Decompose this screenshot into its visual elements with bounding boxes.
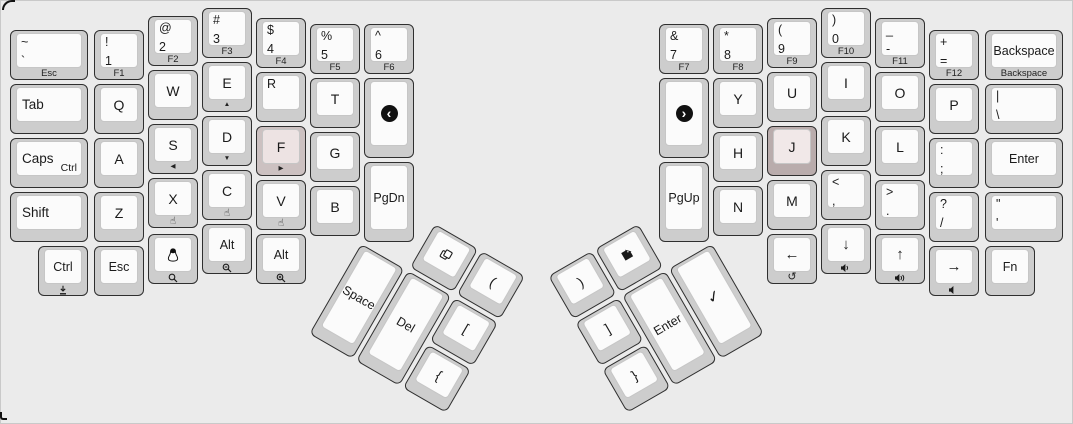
keycap-top: ( [468,257,518,306]
key-ctrl-bottom[interactable]: Ctrl [38,246,88,296]
key-legend: ` [21,54,25,68]
keycap-top: &7 [665,27,703,62]
key-legend-shifted: ? [940,197,947,211]
key-legend: Alt [209,228,245,261]
key-3[interactable]: #3F3 [202,8,252,58]
keycap-top: → [935,249,973,284]
key-front-legend: Esc [11,68,87,79]
key-legend: B [317,190,353,223]
keycap-top: W [154,73,192,108]
key-legend: K [828,120,864,153]
key-legend: M [774,184,810,217]
key-legend: } [610,351,658,398]
keycap-top: += [935,33,973,68]
keycap-top: R [262,75,300,110]
key-9[interactable]: (9F9 [767,18,817,68]
key-legend: O [882,76,918,109]
key-legend: Y [720,82,756,115]
key-z[interactable]: Z [94,192,144,242]
key-front-legend: F7 [660,62,708,73]
keycap-top: M [773,183,811,218]
key-5[interactable]: %5F5 [310,24,360,74]
key-8[interactable]: *8F8 [713,24,763,74]
key-legend: E [209,66,245,99]
key-legend-shifted: % [321,29,332,43]
key-legend: D [209,120,245,153]
keycap-top: Backspace [991,33,1057,68]
key-legend-shifted: & [670,29,678,43]
key-u[interactable]: U [767,72,817,122]
key-legend-shifted: ( [778,23,782,37]
key-1[interactable]: !1F1 [94,30,144,80]
keycap-top: S [154,127,192,162]
key-legend: N [720,190,756,223]
keycap-top: !1 [100,33,138,68]
key-m[interactable]: M [767,180,817,230]
key-c[interactable]: C☝ [202,170,252,220]
keycap-top: $4 [262,21,300,56]
key-arrow-up[interactable]: ↑ [875,234,925,284]
key-d[interactable]: D▼ [202,116,252,166]
tux-icon [167,248,179,262]
key-legend: ↑ [882,238,918,271]
key-6[interactable]: ^6F6 [364,24,414,74]
key-legend: ) [556,258,604,305]
key-legend: ; [940,162,943,176]
key-legend-shifted: ~ [21,35,28,49]
keycap-top: CapsCtrl [16,141,82,176]
keycap-top: |\ [991,87,1057,122]
key-legend-shifted: _ [886,23,893,37]
key-legend-shifted: # [213,13,220,27]
keycap-top: "' [991,195,1057,230]
key-pgdn[interactable]: PgDn [364,162,414,242]
keycap-top: <, [827,173,865,208]
key-legend [423,231,471,278]
key-grave[interactable]: ~`Esc [10,30,88,80]
keycap-top: K [827,119,865,154]
canvas-corner-mark [2,0,15,10]
key-legend: Shift [22,196,49,229]
key-shift[interactable]: Shift [10,192,88,242]
key-legend-shifted: " [996,197,1000,211]
key-legend: Caps [22,142,54,175]
key-front-legend: F3 [203,46,251,57]
key-alt-left-2[interactable]: Alt [256,234,306,284]
volume-down-icon [840,263,852,273]
key-front-legend: ↺ [768,272,816,283]
triangle-left-icon: ◀ [171,164,176,171]
search-icon [168,273,178,283]
key-legend: Enter [992,142,1056,175]
key-backspace[interactable]: BackspaceBackspace [985,30,1063,80]
key-w[interactable]: W [148,70,198,120]
keycap-top: J [773,129,811,164]
keycap-top: Shift [16,195,82,230]
keycap-top: › [665,81,703,146]
keycap-top: ~` [16,33,82,68]
keycap-top [602,230,652,279]
key-equals[interactable]: +=F12 [929,30,979,80]
key-legend: F [263,130,299,163]
key-legend: A [101,142,137,175]
key-pgup[interactable]: PgUp [659,162,709,242]
key-enter-main[interactable]: Enter [985,138,1063,188]
keycap-top: ] [582,303,632,352]
download-icon [58,285,68,295]
key-legend-shifted: ! [105,35,108,49]
key-front-legend: ▼ [203,154,251,165]
key-legend: G [317,136,353,169]
keycap-top: C [208,173,246,208]
pointer-hand-icon: ☝ [224,209,230,219]
key-legend-shifted: ) [832,13,836,27]
keycap-top: :; [935,141,973,176]
key-legend: 0 [832,32,839,46]
key-legend: ← [774,238,810,271]
keycap-top: { [414,350,464,399]
keycap-top: %5 [316,27,354,62]
keycap-top [154,237,192,272]
key-legend: 9 [778,42,785,56]
key-legend: I [828,66,864,99]
key-front-legend: ☝ [257,218,305,229]
key-front-legend: F5 [311,62,359,73]
key-front-legend: F2 [149,54,197,65]
key-legend: 3 [213,32,220,46]
keycap-top: Fn [991,249,1029,284]
key-legend: 1 [105,54,112,68]
key-legend: Ctrl [45,250,81,283]
key-n[interactable]: N [713,186,763,236]
key-super-tux[interactable] [148,234,198,284]
key-front-legend: F11 [876,56,924,67]
keycap-top: PgDn [370,165,408,230]
key-l[interactable]: L [875,126,925,176]
key-front-legend: ▲ [203,100,251,111]
check-icon: ✓ [704,287,724,308]
keycap-top: N [719,189,757,224]
keycap-top: PgUp [665,165,703,230]
key-legend-shifted: @ [159,21,172,35]
key-front-legend: F10 [822,46,870,57]
key-legend: 4 [267,42,274,56]
keycap-top: Y [719,81,757,116]
keycap-top: Enter [991,141,1057,176]
keycap-top: G [316,135,354,170]
volume-up-icon [894,273,906,283]
key-front-legend [930,284,978,295]
key-browser-forward[interactable]: › [659,78,709,158]
key-legend: Esc [101,250,137,283]
keycap-top: #3 [208,11,246,46]
keycap-top: Q [100,87,138,122]
key-legend: Tab [22,88,44,121]
pointer-hand-icon: ☝ [170,217,176,227]
key-p[interactable]: P [929,84,979,134]
key-h[interactable]: H [713,132,763,182]
key-k[interactable]: K [821,116,871,166]
key-legend [155,238,191,271]
key-backslash[interactable]: |\ [985,84,1063,134]
key-legend: . [886,204,889,218]
key-legend: 5 [321,48,328,62]
key-front-legend: F12 [930,68,978,79]
circled-chevron-right-icon: › [676,105,693,122]
key-t[interactable]: T [310,78,360,128]
pointer-hand-icon: ☝ [278,219,284,229]
keycap-top: T [316,81,354,116]
key-minus[interactable]: _-F11 [875,18,925,68]
keycap-top: P [935,87,973,122]
key-period[interactable]: >. [875,180,925,230]
keycap-top: _- [881,21,919,56]
key-legend: ] [583,305,631,352]
key-legend: C [209,174,245,207]
keycap-top: ?/ [935,195,973,230]
keycap-top: ) [555,257,605,306]
key-legend: 6 [375,48,382,62]
key-legend: H [720,136,756,169]
key-legend: - [886,42,890,56]
key-arrow-left[interactable]: ←↺ [767,234,817,284]
key-front-legend: ☝ [203,208,251,219]
keycap-top: A [100,141,138,176]
key-legend [603,231,651,278]
key-legend: { [415,351,463,398]
key-g[interactable]: G [310,132,360,182]
key-v[interactable]: V☝ [256,180,306,230]
keycap-top: I [827,65,865,100]
key-front-legend: ▶ [257,164,305,175]
keycap-top [421,230,471,279]
keycap-top: *8 [719,27,757,62]
key-legend: PgUp [666,166,702,229]
keycap-top: H [719,135,757,170]
canvas-corner-mark [0,412,7,420]
keycap-top: X [154,181,192,216]
key-legend: W [155,74,191,107]
key-0[interactable]: )0F10 [821,8,871,58]
key-front-legend [149,272,197,283]
key-legend: ( [469,258,517,305]
undo-icon: ↺ [787,272,796,283]
key-r[interactable]: R [256,72,306,122]
key-y[interactable]: Y [713,78,763,128]
zoom-in-icon [276,273,286,283]
key-legend: 2 [159,40,166,54]
key-e[interactable]: E▲ [202,62,252,112]
keycap-top: U [773,75,811,110]
key-legend: Q [101,88,137,121]
key-front-legend [822,262,870,273]
keycap-top: F [262,129,300,164]
keycap-top: E [208,65,246,100]
key-front-legend [876,272,924,283]
keycap-top: ‹ [370,81,408,146]
triangle-up-icon: ▲ [224,102,230,109]
key-front-legend: F9 [768,56,816,67]
key-caps[interactable]: CapsCtrl [10,138,88,188]
key-legend-shifted: | [996,89,999,103]
key-front-legend: ☝ [149,216,197,227]
keycap-top: (9 [773,21,811,56]
keycap-top: B [316,189,354,224]
key-front-legend: F4 [257,56,305,67]
key-legend: [ [442,305,490,352]
key-legend: Fn [992,250,1028,283]
key-o[interactable]: O [875,72,925,122]
key-legend: › [666,82,702,145]
keycap-top: Alt [208,227,246,262]
key-legend: PgDn [371,166,407,229]
key-legend: J [774,130,810,163]
key-legend: \ [996,108,999,122]
key-legend-shifted: R [267,77,276,91]
key-legend: ‹ [371,82,407,145]
key-f[interactable]: F▶ [256,126,306,176]
key-b[interactable]: B [310,186,360,236]
keycap-top: ↓ [827,227,865,262]
zoom-out-icon [222,263,232,273]
keycap-top: Z [100,195,138,230]
keycap-top: Tab [16,87,82,122]
key-legend: X [155,182,191,215]
copy-icon [438,246,454,262]
paste-icon [619,246,635,262]
key-front-legend [39,284,87,295]
key-front-legend: ◀ [149,162,197,173]
key-semicolon[interactable]: :; [929,138,979,188]
keycap-top: V [262,183,300,218]
key-legend-shifted: > [886,185,893,199]
key-j[interactable]: J [767,126,817,176]
key-esc-bottom[interactable]: Esc [94,246,144,296]
mute-icon [948,285,960,295]
keycap-top: O [881,75,919,110]
key-front-legend: Backspace [986,68,1062,79]
keycap-top: Alt [262,237,300,272]
key-legend: → [936,250,972,283]
keycap-top: [ [441,303,491,352]
key-4[interactable]: $4F4 [256,18,306,68]
keycap-top: L [881,129,919,164]
key-legend-shifted: * [724,29,729,43]
key-legend: L [882,130,918,163]
key-fn[interactable]: Fn [985,246,1035,296]
key-legend-shifted: $ [267,23,274,37]
key-arrow-right[interactable]: → [929,246,979,296]
key-legend-secondary: Ctrl [61,162,77,174]
key-legend: 8 [724,48,731,62]
key-legend: S [155,128,191,161]
key-front-legend: F8 [714,62,762,73]
key-arrow-down[interactable]: ↓ [821,224,871,274]
triangle-down-icon: ▼ [224,156,230,163]
key-legend: P [936,88,972,121]
keycap-top: D [208,119,246,154]
key-legend: Backspace [992,34,1056,67]
keycap-top: ← [773,237,811,272]
key-legend: / [940,216,943,230]
key-legend: ' [996,216,998,230]
key-legend: ↓ [828,228,864,261]
keycap-top: } [609,350,659,399]
key-s[interactable]: S◀ [148,124,198,174]
key-legend-shifted: : [940,143,943,157]
key-legend: U [774,76,810,109]
key-q[interactable]: Q [94,84,144,134]
key-x[interactable]: X☝ [148,178,198,228]
keycap-top: Ctrl [44,249,82,284]
keycap-top: ^6 [370,27,408,62]
circled-chevron-left-icon: ‹ [381,105,398,122]
key-i[interactable]: I [821,62,871,112]
key-slash[interactable]: ?/ [929,192,979,242]
key-front-legend: F6 [365,62,413,73]
key-a[interactable]: A [94,138,144,188]
key-legend-shifted: ^ [375,29,381,43]
key-legend-shifted: < [832,175,839,189]
key-front-legend [257,272,305,283]
key-legend: 7 [670,48,677,62]
key-legend: T [317,82,353,115]
key-legend: = [940,54,947,68]
key-2[interactable]: @2F2 [148,16,198,66]
key-front-legend: F1 [95,68,143,79]
keycap-top: ↑ [881,237,919,272]
key-quote[interactable]: "' [985,192,1063,242]
triangle-right-icon: ▶ [279,166,284,173]
key-legend: V [263,184,299,217]
keycap-top: >. [881,183,919,218]
key-legend: , [832,194,835,208]
keyboard-layout-canvas: ~`Esc!1F1@2F2#3F3$4F4%5F5^6F6TabQWE▲RT‹C… [0,0,1073,424]
keycap-top: )0 [827,11,865,46]
key-comma[interactable]: <, [821,170,871,220]
key-tab[interactable]: Tab [10,84,88,134]
key-legend-shifted: + [940,35,947,49]
key-alt-left-1[interactable]: Alt [202,224,252,274]
key-7[interactable]: &7F7 [659,24,709,74]
key-front-legend [203,262,251,273]
key-legend: Z [101,196,137,229]
key-browser-back[interactable]: ‹ [364,78,414,158]
keycap-top: Esc [100,249,138,284]
keycap-top: @2 [154,19,192,54]
key-legend: Alt [263,238,299,271]
